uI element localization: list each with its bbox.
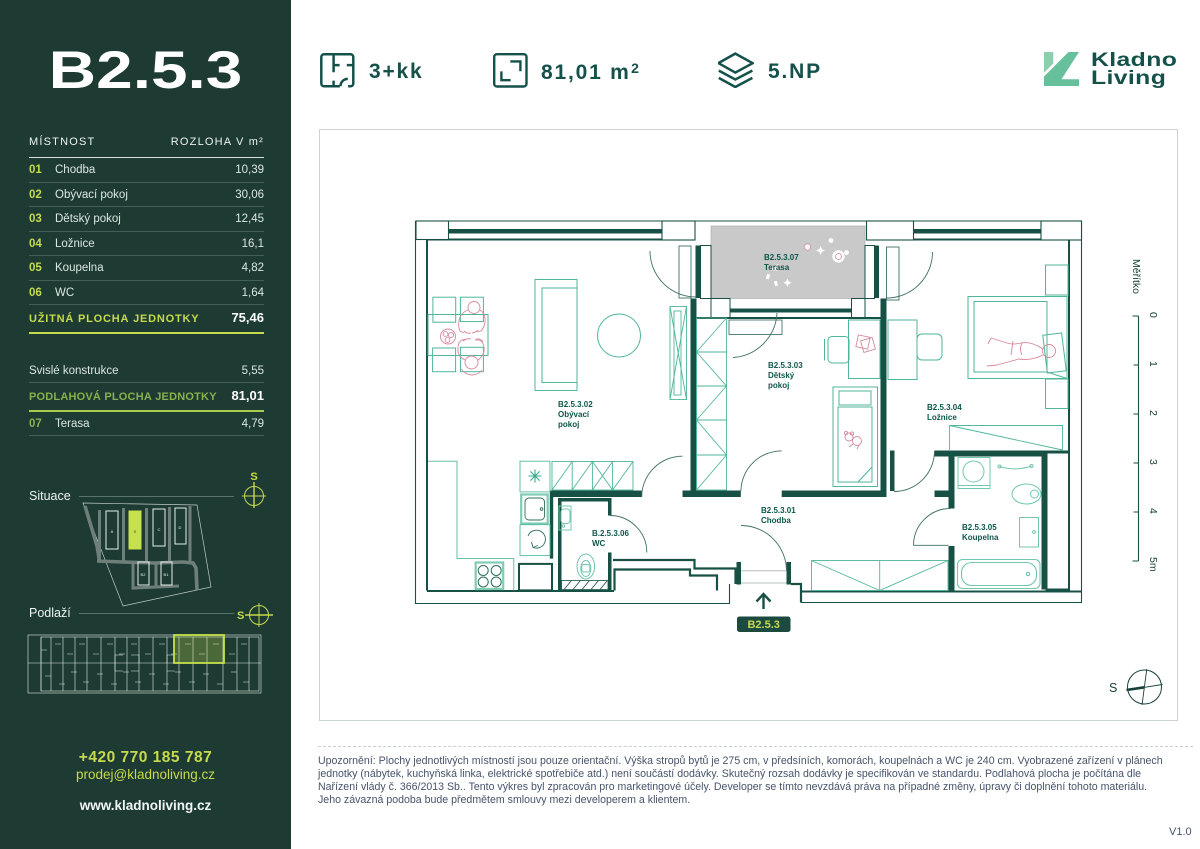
svg-text:Chodba: Chodba xyxy=(761,516,791,525)
svg-text:1: 1 xyxy=(1147,361,1159,367)
svg-text:B2: B2 xyxy=(141,572,147,577)
svg-text:0: 0 xyxy=(1147,312,1159,318)
svg-text:pokoj: pokoj xyxy=(558,420,579,429)
svg-text:B2.5.3.02: B2.5.3.02 xyxy=(558,400,593,409)
svg-text:Ložnice: Ložnice xyxy=(927,413,957,422)
svg-text:B2.5.3.01: B2.5.3.01 xyxy=(761,506,796,515)
svg-text:Měřítko: Měřítko xyxy=(1130,259,1142,294)
svg-text:A: A xyxy=(111,529,114,534)
svg-text:Dětský: Dětský xyxy=(768,371,795,380)
svg-text:B2.5.3: B2.5.3 xyxy=(747,619,779,631)
svg-text:Obývací: Obývací xyxy=(558,410,590,419)
svg-text:Koupelna: Koupelna xyxy=(962,533,999,542)
svg-text:S: S xyxy=(1109,681,1117,695)
svg-text:D: D xyxy=(179,525,182,530)
svg-text:B1: B1 xyxy=(164,572,170,577)
svg-text:4: 4 xyxy=(1147,508,1159,514)
svg-text:C: C xyxy=(158,527,161,532)
svg-text:Terasa: Terasa xyxy=(764,263,790,272)
svg-text:2: 2 xyxy=(1147,410,1159,416)
svg-text:B.2.5.3.06: B.2.5.3.06 xyxy=(592,529,629,538)
svg-text:B: B xyxy=(134,529,137,534)
svg-text:S: S xyxy=(250,471,257,483)
svg-text:B2.5.3.03: B2.5.3.03 xyxy=(768,361,803,370)
svg-text:B2.5.3.07: B2.5.3.07 xyxy=(764,253,799,262)
svg-text:3: 3 xyxy=(1147,459,1159,465)
svg-text:pokoj: pokoj xyxy=(768,381,789,390)
svg-text:5m: 5m xyxy=(1147,557,1159,572)
svg-text:S: S xyxy=(237,610,244,622)
svg-text:B2.5.3.05: B2.5.3.05 xyxy=(962,523,997,532)
svg-text:B2.5.3.04: B2.5.3.04 xyxy=(927,403,962,412)
svg-text:WC: WC xyxy=(592,539,606,548)
